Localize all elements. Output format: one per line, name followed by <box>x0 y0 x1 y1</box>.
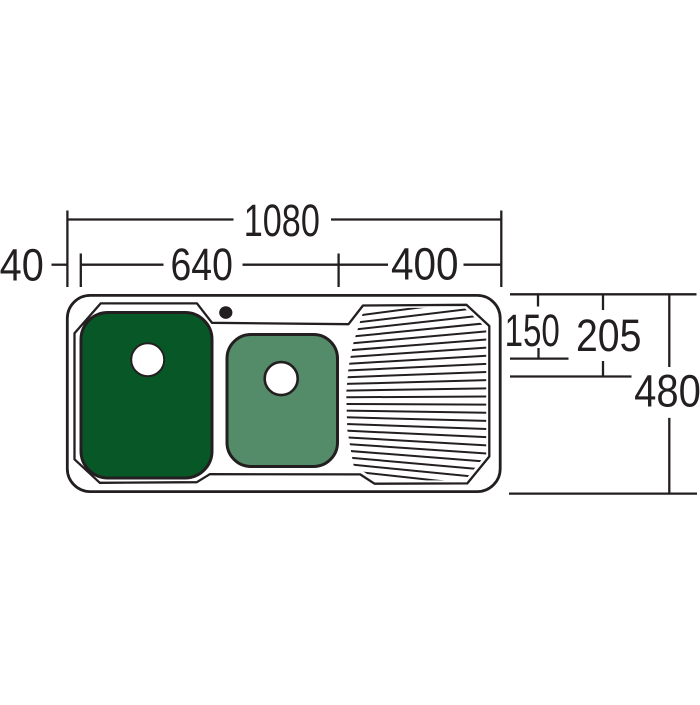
svg-text:640: 640 <box>171 240 233 290</box>
svg-text:40: 40 <box>0 240 44 290</box>
svg-text:480: 480 <box>634 366 700 417</box>
svg-text:400: 400 <box>391 239 459 289</box>
svg-text:205: 205 <box>576 310 641 360</box>
svg-text:1080: 1080 <box>244 197 320 247</box>
svg-text:150: 150 <box>505 306 560 356</box>
